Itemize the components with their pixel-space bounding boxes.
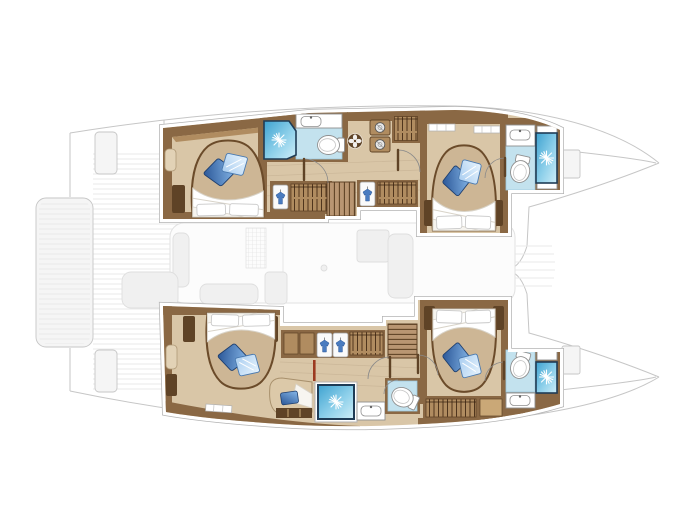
wardrobe-forward: [423, 396, 505, 420]
deck-plan-canvas: [0, 0, 700, 524]
deck-plan-svg: [0, 0, 700, 524]
chaise-longue: [270, 378, 312, 418]
port-hull: [163, 106, 560, 233]
bow-locker-port: [562, 150, 580, 178]
cushion-dark: [280, 391, 299, 405]
platform-teak: [39, 201, 90, 344]
stairs-starboard: [388, 324, 417, 358]
handrail-post: [313, 360, 316, 381]
starboard-wardrobes: [281, 330, 385, 358]
salon-sofa: [388, 234, 413, 298]
stairs-port: [327, 182, 355, 216]
salon-table: [357, 230, 389, 262]
salon-bench: [200, 284, 258, 304]
nightstand: [172, 185, 185, 213]
bench: [165, 149, 176, 171]
bow-locker-starboard: [562, 346, 580, 374]
wardrobe-aft-lower: [270, 181, 332, 214]
starboard-hull: [160, 300, 560, 432]
dresser: [166, 374, 177, 396]
starboard-forward-bathroom: [503, 346, 560, 414]
galley-mat: [246, 228, 266, 268]
wardrobe-top: [392, 114, 420, 143]
cockpit-table: [265, 272, 287, 304]
port-mid-bathroom: [260, 110, 348, 162]
port-forward-bathroom: [503, 118, 560, 192]
nightstand: [183, 316, 195, 342]
starboard-aft-toilet-room: [385, 378, 421, 414]
wardrobe-mid: [357, 180, 418, 207]
bench: [166, 345, 177, 369]
foredeck: [513, 246, 555, 286]
